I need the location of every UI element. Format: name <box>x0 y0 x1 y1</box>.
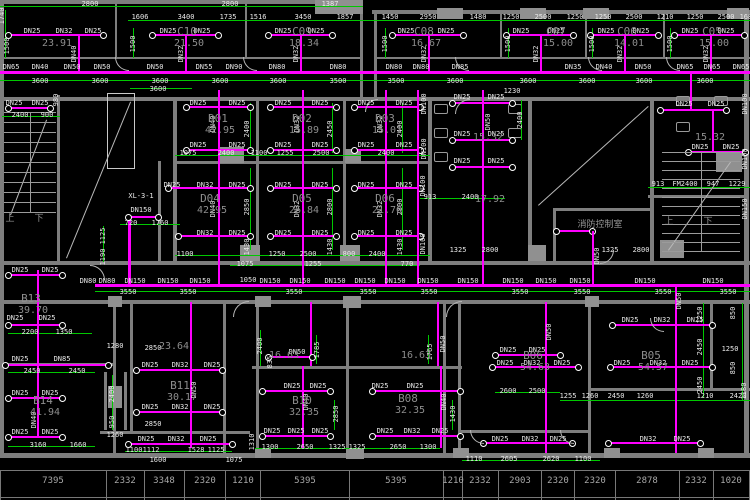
dimension-label: 3600 <box>150 85 167 93</box>
dimension-label: 1500 <box>381 36 389 53</box>
pipe-size-label: DN25 <box>275 141 292 149</box>
room-area-label: 42.95 <box>205 126 235 136</box>
room-tag: D04 <box>200 193 220 204</box>
grid-dimension-label: 3348 <box>153 477 175 486</box>
dimension-label: 1255 <box>277 149 294 157</box>
door-swing-arc <box>470 430 484 444</box>
dimension-label: 720 <box>125 219 138 227</box>
room-area-label: 30.17 <box>167 393 197 403</box>
dimension-label: 2400 <box>243 121 251 138</box>
pipe-size-label: DN25 <box>554 359 571 367</box>
pipe-node <box>655 32 662 39</box>
wall <box>528 97 532 263</box>
pipe-segment <box>8 324 62 326</box>
grid-dimension-label: 2878 <box>636 477 658 486</box>
dimension-label: 1500 <box>666 36 674 53</box>
dimension-label: 1250 <box>722 345 739 353</box>
stair-rail <box>30 112 31 212</box>
dimension-label: 3600 <box>579 77 596 85</box>
dimension-label: 1350 <box>56 328 73 336</box>
pipe-segment <box>136 369 222 371</box>
pipe-node <box>149 32 156 39</box>
pipe-size-label: DN25 <box>500 346 517 354</box>
dimension-label: 2950 <box>420 13 437 21</box>
pipe-node <box>657 107 664 114</box>
dimension-label: 1387 <box>322 0 339 8</box>
room-name-label: 上 <box>5 214 14 224</box>
pipe-size-label: DN25 <box>312 229 329 237</box>
room-area-label: 18.34 <box>289 39 319 49</box>
wall <box>588 300 591 453</box>
pipe-size-label: DN32 <box>654 316 671 324</box>
pipe-size-label: DN25 <box>454 157 471 165</box>
pipe-segment <box>372 435 460 437</box>
pipe-size-label: DN25 <box>42 428 59 436</box>
room-name-label: 上 <box>664 217 673 227</box>
dimension-label: 2450 <box>69 367 86 375</box>
dimension-label: 1516 <box>250 13 267 21</box>
pipe-size-label: DN25 <box>396 99 413 107</box>
dimension-label: 1688 <box>740 13 750 21</box>
wall <box>57 95 60 263</box>
room-name-label: 消防控制室 <box>577 220 622 230</box>
room-tag: D05 <box>292 193 312 204</box>
dimension-label: 1325 <box>349 443 366 451</box>
pipe-size-label: DN25 <box>312 181 329 189</box>
dimension-label: 1230 <box>504 87 521 95</box>
room-area-label: 15.00 <box>543 39 573 49</box>
pipe-size-label: DN25 <box>312 99 329 107</box>
wall <box>343 99 346 264</box>
pipe-node <box>2 362 9 369</box>
dimension-label: 3160 <box>30 441 47 449</box>
pipe-node <box>247 185 254 192</box>
shaft-outline <box>107 93 135 169</box>
pipe-size-label: DN32 <box>172 403 189 411</box>
pipe-size-label: DN65 <box>733 63 750 71</box>
pipe-size-label: DN25 <box>204 361 221 369</box>
dimension-label: 3550 <box>512 288 529 296</box>
dimension-label: 3600 <box>447 77 464 85</box>
room-area-label: 16.63 <box>401 351 431 361</box>
room-area-label: 39.70 <box>18 306 48 316</box>
pipe-node <box>247 104 254 111</box>
pipe-size-label: DN25 <box>138 435 155 443</box>
pipe-size-label: DN25 <box>32 99 49 107</box>
dimension-label: 3550 <box>720 288 737 296</box>
pipe-node <box>605 440 612 447</box>
pipe-size-label: DN40 <box>596 63 613 71</box>
dimension-label: 2200 <box>22 328 39 336</box>
pipe-size-label: DN150 <box>502 277 523 285</box>
grid-dimension-label: 2320 <box>584 477 606 486</box>
pipe-size-label: DN25 <box>674 435 691 443</box>
dimension-label: 1857 <box>337 13 354 21</box>
dimension-label: 2500 <box>718 13 735 21</box>
dimension-label: 3600 <box>152 77 169 85</box>
pipe-node <box>553 228 560 235</box>
pipe-node <box>369 433 376 440</box>
pipe-size-label: DN25 <box>275 229 292 237</box>
room-area-label: 15.01 <box>372 126 402 136</box>
pipe-size-label: DN150 <box>189 277 210 285</box>
pipe-segment <box>540 35 542 72</box>
pipe-size-label: DN100 <box>420 93 428 114</box>
pipe-node <box>449 100 456 107</box>
pipe-size-label: DN50 <box>593 248 601 265</box>
pipe-size-label: DN25 <box>200 435 217 443</box>
structural-column <box>255 296 271 307</box>
dimension-label: 2800 <box>482 246 499 254</box>
dimension-label: 2850 <box>332 406 340 423</box>
pipe-node <box>5 322 12 329</box>
grid-dimension-label: 2320 <box>194 477 216 486</box>
pipe-node <box>265 32 272 39</box>
pipe-size-label: DN25 <box>264 427 281 435</box>
grid-band-line <box>0 497 750 498</box>
room-area-label: 15.32 <box>473 133 503 143</box>
room-area-label: 15.32 <box>695 133 725 143</box>
dimension-label: 1190 <box>99 249 107 266</box>
dimension-label: 3550 <box>286 288 303 296</box>
dimension-label: 2650 <box>297 443 314 451</box>
pipe-size-label: DN25 <box>598 27 615 35</box>
dimension-label: 1075 <box>237 260 254 268</box>
wall <box>428 97 432 264</box>
grid-dimension-label: 2332 <box>685 477 707 486</box>
pipe-size-label: DN32 <box>168 435 185 443</box>
pipe-segment <box>262 390 330 392</box>
pipe-size-label: DN25 <box>432 427 449 435</box>
dimension-label: 1500 <box>504 36 512 53</box>
dimension-label: 1325 <box>450 246 467 254</box>
dimension-label: 1325 <box>329 443 346 451</box>
dimension-label: 1229 <box>729 180 746 188</box>
pipe-size-label: DN25 <box>164 181 181 189</box>
pipe-node <box>509 164 516 171</box>
pipe-size-label: DN150 <box>741 198 749 219</box>
room-tag: D06 <box>375 193 395 204</box>
grid-band-separator <box>679 470 680 497</box>
room-area-label: 42.95 <box>197 206 227 216</box>
structural-column <box>437 8 463 19</box>
pipe-node <box>327 388 334 395</box>
pipe-size-label: DN25 <box>310 382 327 390</box>
grid-band-separator <box>184 470 185 497</box>
pipe-size-label: DN25 <box>275 99 292 107</box>
wall <box>245 4 247 57</box>
pipe-node <box>609 322 616 329</box>
dimension-label: 850 <box>729 362 737 375</box>
pipe-segment <box>8 436 62 438</box>
pipe-size-label: DN25 <box>614 359 631 367</box>
pipe-size-label: DN25 <box>513 27 530 35</box>
pipe-node <box>59 434 66 441</box>
pipe-size-label: DN25 <box>142 361 159 369</box>
pipe-node <box>105 362 112 369</box>
pipe-size-label: DN25 <box>85 27 102 35</box>
pipe-node <box>333 233 340 240</box>
pipe-size-label: DN25 <box>312 141 329 149</box>
pipe-size-label: DN25 <box>284 382 301 390</box>
pipe-size-label: DN80 <box>99 277 116 285</box>
pipe-segment <box>712 110 714 152</box>
dimension-label: 2650 <box>390 443 407 451</box>
wall <box>256 300 259 453</box>
pipe-size-label: DN50 <box>94 63 111 71</box>
pipe-size-label: DN25 <box>396 181 413 189</box>
pipe-size-label: DN25 <box>190 99 207 107</box>
room-tag: C10 <box>177 26 197 37</box>
pipe-size-label: DN90 <box>226 63 243 71</box>
dimension-label: 1125 <box>99 228 107 245</box>
dimension-label: 947 <box>707 180 720 188</box>
pipe-size-label: DN25 <box>204 403 221 411</box>
pipe-size-label: DN55 <box>196 63 213 71</box>
pipe-size-label: DN85 <box>452 63 469 71</box>
pipe-node <box>457 388 464 395</box>
room-tag: D01 <box>208 113 228 124</box>
pipe-size-label: DN80 <box>386 63 403 71</box>
pipe-size-label: DN50 <box>484 114 492 131</box>
dimension-label: 1310 <box>248 434 256 451</box>
dimension-label: 3600 <box>92 77 109 85</box>
pipe-size-label: DN65 <box>677 63 694 71</box>
pipe-size-label: DN25 <box>407 382 424 390</box>
dimension-label: 1500 <box>3 38 11 55</box>
dimension-label: 1210 <box>657 13 674 21</box>
dimension-label: 1500 <box>129 36 137 53</box>
pipe-node <box>723 107 730 114</box>
pipe-node <box>333 185 340 192</box>
dimension-label: 2800 <box>222 0 239 8</box>
grid-band-separator <box>260 470 261 497</box>
pipe-size-label: DN25 <box>24 27 41 35</box>
pipe-size-label: DN25 <box>488 157 505 165</box>
dimension-label: 913 <box>652 180 665 188</box>
pipe-node <box>133 367 140 374</box>
dimension-label: 2450 <box>24 367 41 375</box>
dimension-label: 1300 <box>262 443 279 451</box>
dimension-label: 1250 <box>595 13 612 21</box>
room-area-label: 16.67 <box>411 39 441 49</box>
pipe-size-label: DN32 <box>197 181 214 189</box>
wall <box>375 57 750 59</box>
dimension-label: 1280 <box>107 342 124 350</box>
diagonal-line <box>538 106 649 206</box>
pipe-size-label: DN25 <box>275 181 292 189</box>
pipe-size-label: DN32 <box>172 361 189 369</box>
pipe-size-label: DN150 <box>634 277 655 285</box>
grid-band-separator <box>574 470 575 497</box>
dimension-line <box>0 6 363 7</box>
pipe-size-label: DN80 <box>413 63 430 71</box>
pipe-segment <box>675 285 677 453</box>
pipe-node <box>267 147 274 154</box>
pipe-size-label: DN85 <box>54 355 71 363</box>
pipe-segment <box>262 435 330 437</box>
dimension-label: 2400 <box>378 149 395 157</box>
pipe-size-label: DN25 <box>396 229 413 237</box>
room-area-label: 15.00 <box>699 39 729 49</box>
dimension-label: 1740 <box>0 8 6 25</box>
pipe-size-label: DN40 <box>440 394 448 411</box>
pipe-node <box>59 272 66 279</box>
pipe-size-label: DN32 <box>404 427 421 435</box>
grid-dimension-label: 2332 <box>469 477 491 486</box>
pipe-node <box>333 104 340 111</box>
grid-band-separator <box>541 470 542 497</box>
pipe-size-label: DN50 <box>545 324 553 341</box>
pipe-node <box>697 440 704 447</box>
plumbing-fixture <box>434 128 448 138</box>
pipe-segment <box>136 411 222 413</box>
room-area-label: 32.35 <box>395 406 425 416</box>
pipe-size-label: DN25 <box>12 389 29 397</box>
pipe-size-label: DN50 <box>675 293 683 310</box>
dimension-label: 1480 <box>470 13 487 21</box>
structural-column <box>604 448 620 458</box>
pipe-size-label: DN150 <box>289 277 310 285</box>
pipe-node <box>259 388 266 395</box>
wall <box>0 0 363 4</box>
grid-band-separator <box>615 470 616 497</box>
room-tag: C07 <box>546 26 566 37</box>
wall <box>256 99 259 264</box>
grid-band-separator <box>225 470 226 497</box>
pipe-size-label: DN150 <box>569 277 590 285</box>
pipe-size-label: DN25 <box>6 99 23 107</box>
pipe-node <box>460 32 467 39</box>
pipe-node <box>175 233 182 240</box>
dimension-line <box>560 400 750 401</box>
dimension-label: 1300 <box>420 443 437 451</box>
dimension-label: 1260 <box>637 392 654 400</box>
dimension-label: 3600 <box>520 77 537 85</box>
dimension-label: 2600 <box>500 387 517 395</box>
pipe-size-label: DN25 <box>497 359 514 367</box>
pipe-size-label: DN65 <box>704 63 721 71</box>
stair-tread <box>662 251 740 252</box>
grid-dimension-label: 1020 <box>720 477 742 486</box>
grid-band-line <box>0 470 750 471</box>
dimension-line <box>255 448 440 449</box>
dimension-label: 2605 <box>501 455 518 463</box>
pipe-size-label: DN25 <box>12 266 29 274</box>
dimension-label: 1180 <box>740 383 748 400</box>
pipe-size-label: DN25 <box>229 181 246 189</box>
dimension-label: 3500 <box>388 77 405 85</box>
pipe-size-label: DN25 <box>377 427 394 435</box>
pipe-size-label: DN25 <box>454 130 471 138</box>
grid-band-separator <box>144 470 145 497</box>
dimension-label: 800 <box>343 250 356 258</box>
room-tag: D03 <box>375 113 395 124</box>
dimension-label: 3400 <box>178 13 195 21</box>
pipe-size-label: DN25 <box>692 143 709 151</box>
room-area-label: 15.89 <box>289 126 319 136</box>
dimension-label: 3600 <box>270 77 287 85</box>
dimension-label: 2500 <box>313 149 330 157</box>
pipe-size-label: DN25 <box>682 27 699 35</box>
dimension-label: 1606 <box>132 13 149 21</box>
wall <box>346 300 349 453</box>
pipe-size-label: DN25 <box>358 229 375 237</box>
dimension-label: 3550 <box>360 288 377 296</box>
pipe-segment <box>660 109 726 111</box>
pipe-size-label: DN50 <box>439 336 447 353</box>
dimension-label: 2800 <box>326 199 334 216</box>
room-name-label: 下 <box>703 217 712 227</box>
pipe-size-label: DN25 <box>12 355 29 363</box>
pipe-size-label: DN150 <box>384 277 405 285</box>
pipe-size-label: DN50 <box>64 63 81 71</box>
room-tag: C09 <box>292 26 312 37</box>
dimension-label: 3600 <box>636 77 653 85</box>
dimension-label: 2450 <box>696 377 704 394</box>
dimension-label: 1100 <box>126 446 143 454</box>
room-area-label: 41.94 <box>30 408 60 418</box>
dimension-label: 2400 <box>12 111 29 119</box>
grid-dimension-label: 2903 <box>509 477 531 486</box>
dimension-label: 1050 <box>240 276 257 284</box>
pipe-size-label: DN50 <box>147 63 164 71</box>
wall <box>115 4 117 57</box>
pipe-size-label: DN150 <box>324 277 345 285</box>
dimension-label: 1528 <box>188 446 205 454</box>
dimension-label: 1112 <box>143 446 160 454</box>
dimension-label: 1100 <box>251 149 268 157</box>
room-area-label: 54.57 <box>638 363 668 373</box>
pipe-node <box>59 395 66 402</box>
pipe-size-label: DN80 <box>330 63 347 71</box>
pipe-node <box>557 352 564 359</box>
dimension-label: 1660 <box>70 441 87 449</box>
pipe-size-label: DN25 <box>358 181 375 189</box>
dimension-label: 2450 <box>608 392 625 400</box>
dimension-label: 1250 <box>503 13 520 21</box>
dimension-label: 1075 <box>226 456 243 464</box>
pipe-size-label: DN150 <box>130 206 151 214</box>
pipe-node <box>229 441 236 448</box>
pipe-size-label: DN100 <box>419 233 427 254</box>
pipe-size-label: DN25 <box>723 143 740 151</box>
dimension-label: 2400 <box>369 250 386 258</box>
grid-dimension-label: 2320 <box>547 477 569 486</box>
dimension-label: 2500 <box>300 250 317 258</box>
pipe-node <box>709 364 716 371</box>
dimension-label: 770 <box>401 260 414 268</box>
wall <box>588 388 750 391</box>
pipe-size-label: DN32 <box>56 27 73 35</box>
dimension-label: 1250 <box>567 13 584 21</box>
dimension-label: 1430 <box>396 239 404 256</box>
pipe-size-label: DN25 <box>229 141 246 149</box>
dimension-label: 2400 <box>256 338 264 355</box>
dimension-label: 1430 <box>449 406 457 423</box>
pipe-segment <box>8 274 62 276</box>
dimension-label: 1760 <box>152 219 169 227</box>
wall <box>710 300 713 390</box>
pipe-size-label: DN150 <box>417 277 438 285</box>
room-area-label: 14.01 <box>614 39 644 49</box>
pipe-size-label: DN150 <box>157 277 178 285</box>
room-area-label: 21.76 <box>372 206 402 216</box>
grid-dimension-label: 5395 <box>385 477 407 486</box>
cad-drawing-canvas[interactable]: 2800280013871740160634001735151634501857… <box>0 0 750 500</box>
dimension-label: 2500 <box>535 13 552 21</box>
pipe-size-label: DN65 <box>3 63 20 71</box>
